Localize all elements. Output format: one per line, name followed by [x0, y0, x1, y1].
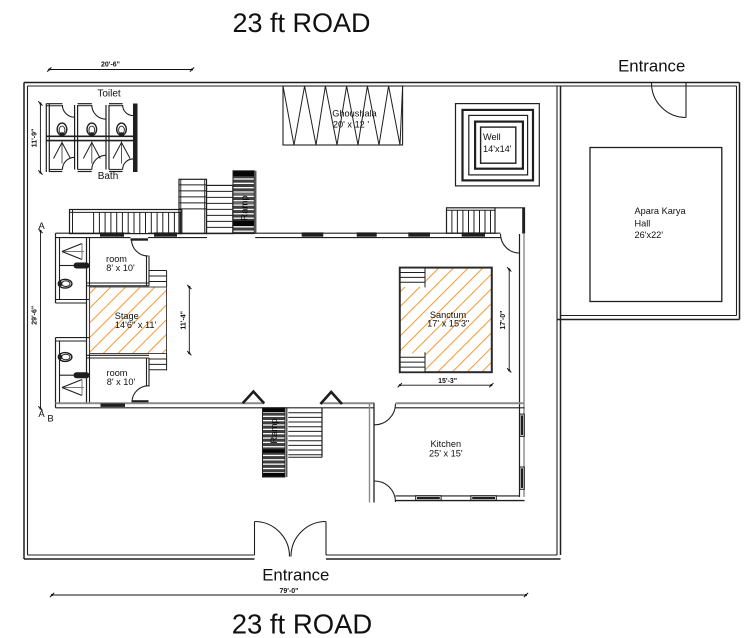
- svg-text:Apara Karya: Apara Karya: [635, 206, 687, 216]
- svg-text:Ramp: Ramp: [269, 418, 280, 443]
- svg-text:8' x 10': 8' x 10': [106, 263, 135, 273]
- svg-text:79'-0": 79'-0": [280, 588, 299, 595]
- svg-text:11'-9": 11'-9": [32, 129, 39, 148]
- svg-text:11'-4": 11'-4": [181, 311, 188, 330]
- svg-text:23 ft ROAD: 23 ft ROAD: [232, 8, 370, 38]
- svg-text:29'-6": 29'-6": [32, 306, 39, 325]
- svg-text:26'x22': 26'x22': [635, 230, 664, 240]
- svg-text:15'-3": 15'-3": [438, 378, 457, 385]
- svg-text:Hall: Hall: [635, 219, 651, 229]
- svg-text:B: B: [47, 414, 53, 425]
- svg-text:Kitchen: Kitchen: [430, 439, 461, 449]
- svg-text:Toilet: Toilet: [97, 89, 121, 100]
- svg-text:A: A: [38, 409, 45, 420]
- svg-text:17' x 15'3": 17' x 15'3": [427, 319, 469, 329]
- svg-text:8' x 10': 8' x 10': [107, 377, 136, 387]
- svg-text:Entrance: Entrance: [618, 57, 685, 76]
- svg-text:17'-0": 17'-0": [500, 311, 507, 330]
- svg-text:Well: Well: [483, 132, 501, 142]
- svg-text:14'6" x 11': 14'6" x 11': [115, 320, 157, 330]
- svg-text:Entrance: Entrance: [262, 566, 329, 585]
- svg-text:Ghoushala: Ghoushala: [332, 109, 377, 119]
- svg-text:25' x 15': 25' x 15': [429, 449, 463, 459]
- svg-text:23 ft ROAD: 23 ft ROAD: [232, 609, 373, 638]
- svg-text:Bath: Bath: [98, 171, 119, 182]
- svg-text:Ramp: Ramp: [240, 195, 251, 220]
- svg-text:20' x 12 ': 20' x 12 ': [333, 120, 369, 130]
- svg-text:20'-6": 20'-6": [101, 62, 120, 69]
- svg-text:14'x14': 14'x14': [483, 144, 512, 154]
